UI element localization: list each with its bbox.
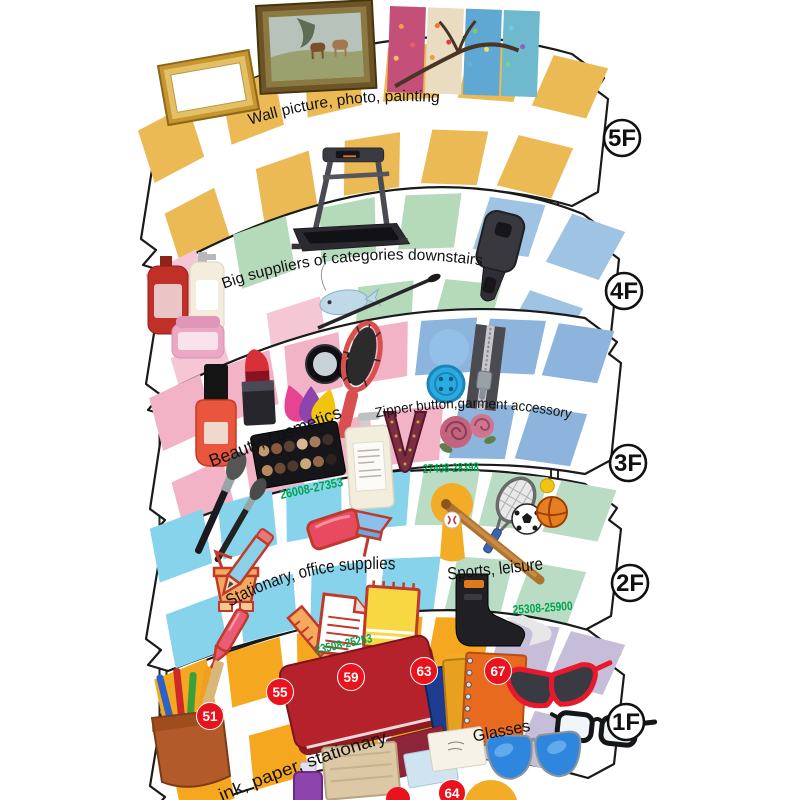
- booth-badge-63: 63: [411, 658, 438, 685]
- floor-marker-4f: 4F: [606, 273, 642, 309]
- baseball: [444, 512, 460, 528]
- svg-text:2F: 2F: [616, 570, 644, 597]
- svg-text:67: 67: [490, 664, 505, 679]
- floor-marker-2f: 2F: [612, 565, 648, 601]
- booth-badge-67: 67: [485, 658, 512, 685]
- floor-marker-1f: 1F: [608, 704, 644, 740]
- basketball: [537, 497, 567, 527]
- svg-text:51: 51: [202, 709, 218, 724]
- range-3f-zipper: 27408-28398: [423, 460, 479, 476]
- booth-badge-55: 55: [267, 679, 294, 706]
- four-season-tree-canvas: [387, 6, 540, 97]
- svg-text:3F: 3F: [614, 450, 642, 477]
- floor-marker-3f: 3F: [610, 445, 646, 481]
- framed-horse-painting: [256, 0, 376, 94]
- svg-text:64: 64: [444, 786, 460, 800]
- market-floor-guide: Wall picture, photo, painting Big suppli…: [0, 0, 800, 800]
- svg-text:55: 55: [272, 685, 288, 700]
- booth-badge-51: 51: [197, 703, 224, 730]
- stall-tile: [344, 132, 400, 196]
- floor-marker-5f: 5F: [604, 120, 640, 156]
- svg-text:1F: 1F: [612, 709, 640, 736]
- svg-text:4F: 4F: [610, 278, 638, 305]
- svg-text:63: 63: [416, 664, 432, 679]
- escalator-marker-gold-bottom: [464, 780, 518, 800]
- svg-text:59: 59: [343, 670, 358, 685]
- floor-guide-canvas: Wall picture, photo, painting Big suppli…: [0, 0, 800, 800]
- booth-badge-59: 59: [338, 664, 365, 691]
- svg-text:5F: 5F: [608, 125, 636, 152]
- stall-tile: [421, 129, 488, 185]
